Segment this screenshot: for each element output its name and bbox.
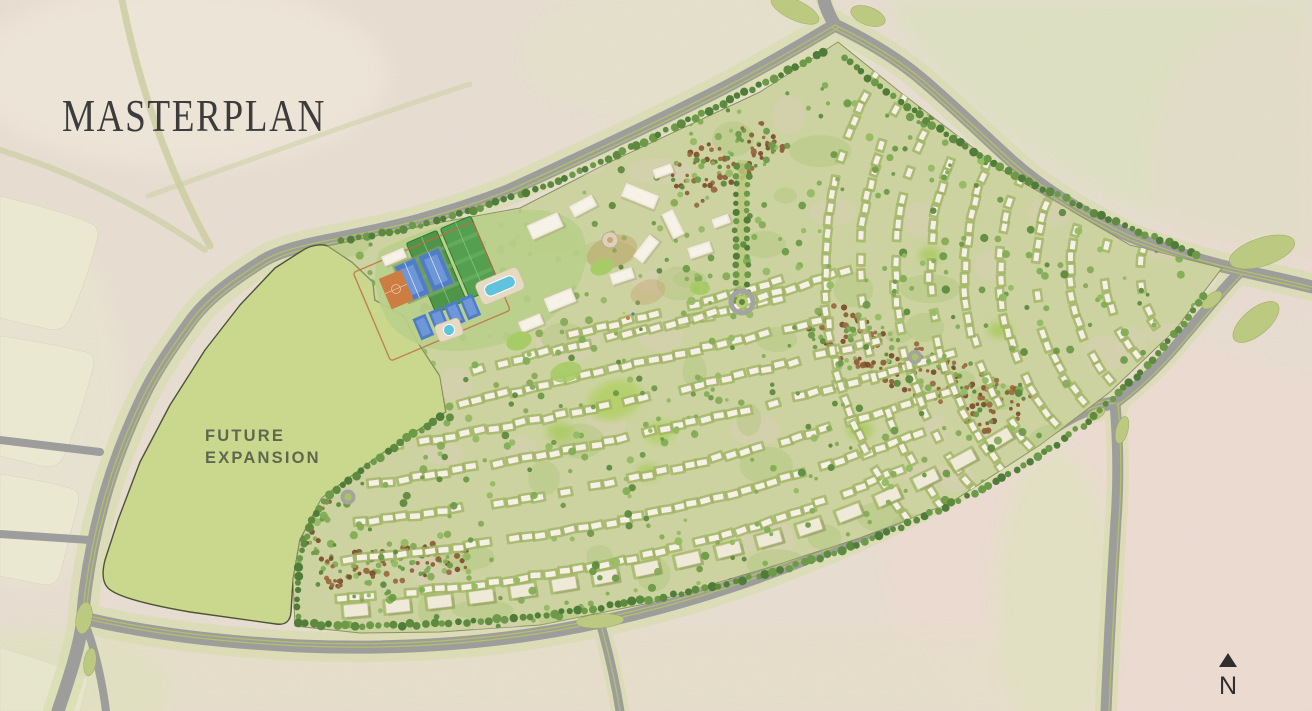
future-expansion-label-line1: FUTURE (205, 427, 285, 445)
roundabout-west (341, 490, 356, 505)
roundabout-east (908, 350, 922, 364)
masterplan-page: MASTERPLAN FUTURE EXPANSION N (0, 0, 1312, 711)
central-boulevard (741, 160, 743, 300)
future-expansion-label-line2: EXPANSION (205, 449, 321, 467)
page-title: MASTERPLAN (62, 90, 326, 141)
north-label: N (1219, 672, 1237, 700)
masterplan-map-canvas: MASTERPLAN FUTURE EXPANSION N (0, 0, 1312, 711)
